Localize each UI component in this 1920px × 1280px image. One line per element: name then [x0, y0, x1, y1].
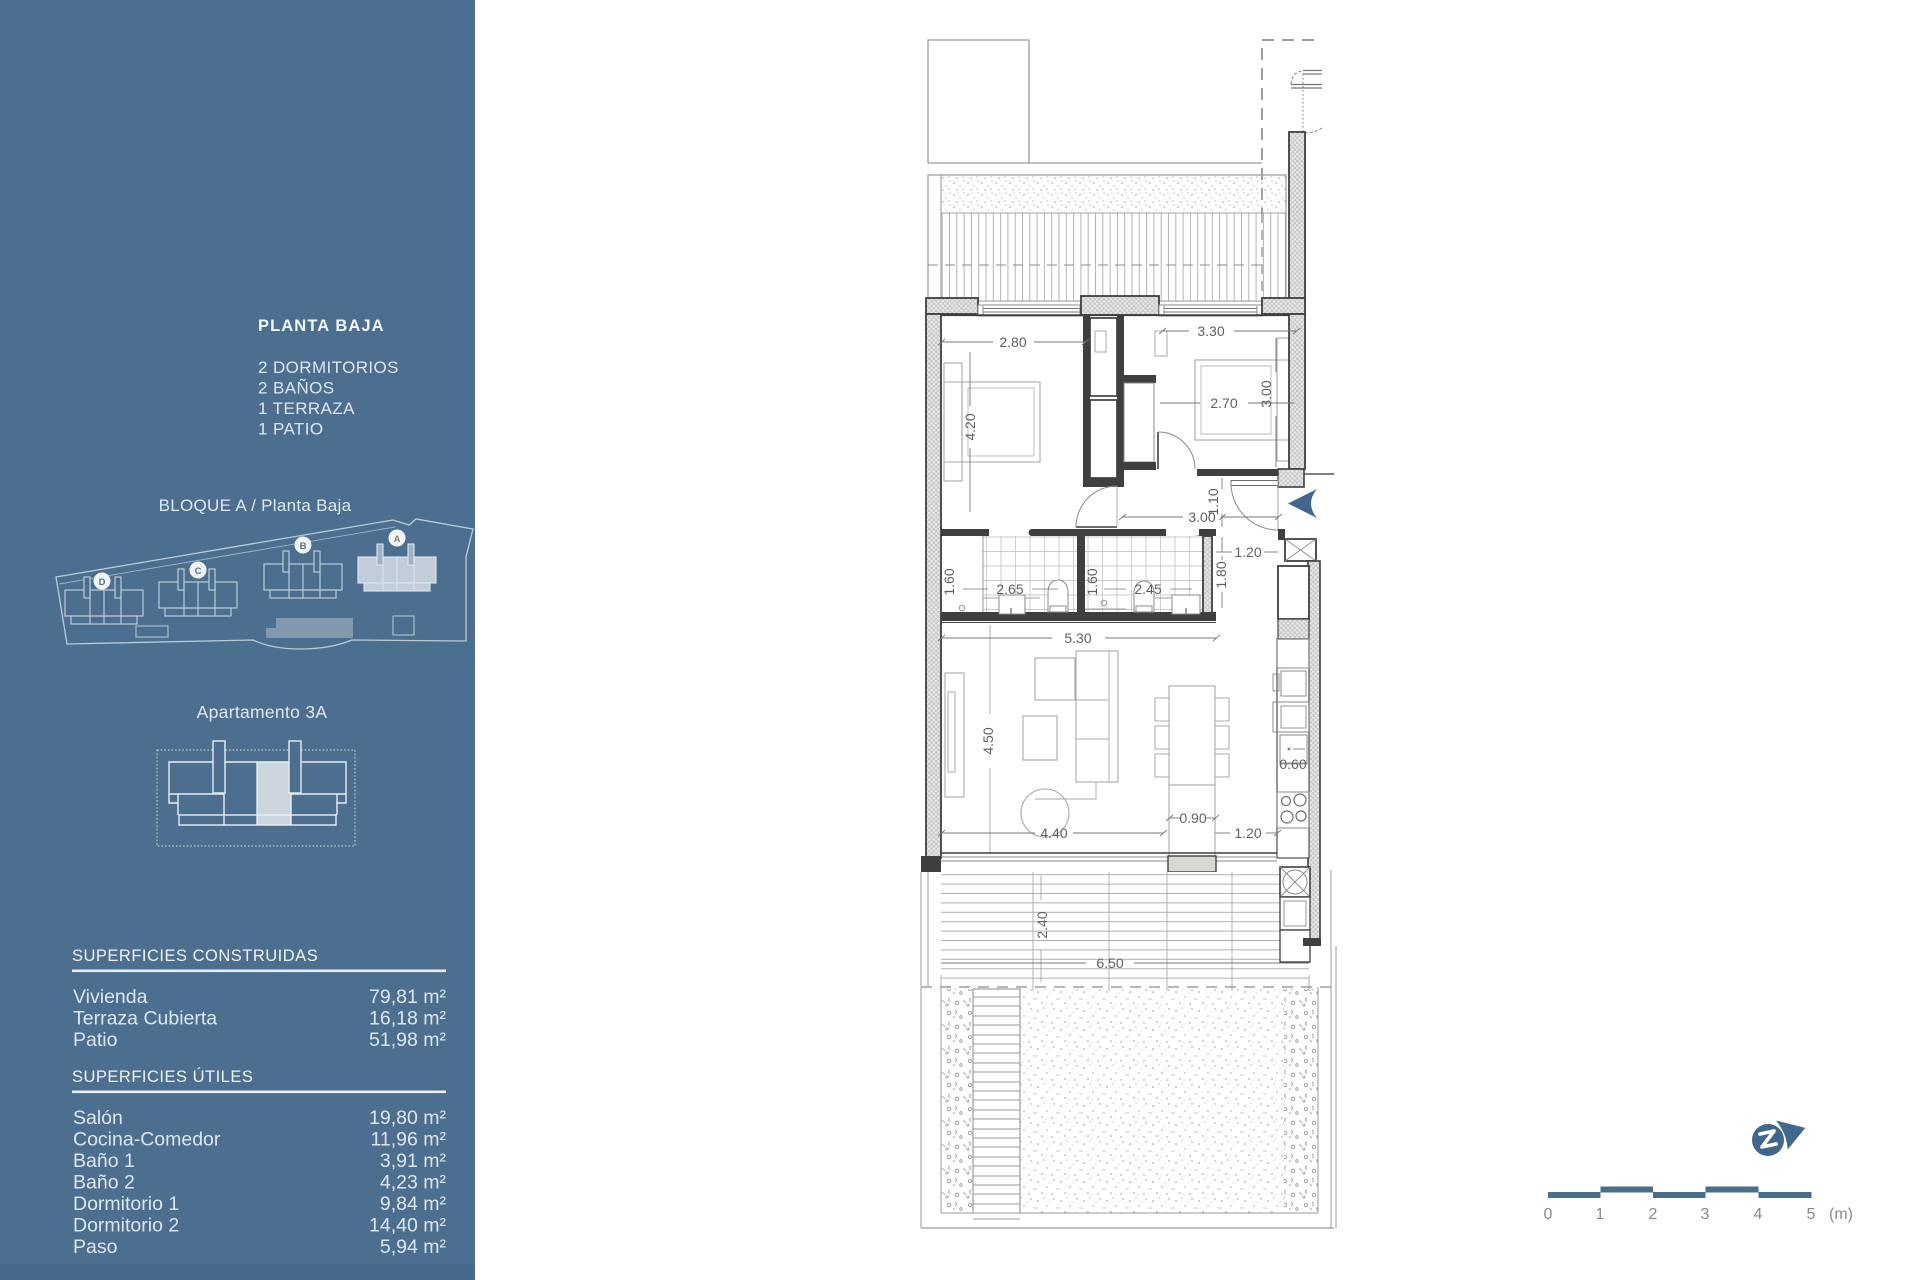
svg-text:9,84 m²: 9,84 m² — [380, 1193, 447, 1215]
svg-text:11,96 m²: 11,96 m² — [370, 1129, 446, 1151]
svg-text:2.45: 2.45 — [1134, 581, 1161, 597]
svg-text:4.20: 4.20 — [962, 413, 978, 440]
svg-text:Vivienda: Vivienda — [73, 986, 148, 1008]
svg-text:BLOQUE A / Planta Baja: BLOQUE A / Planta Baja — [159, 496, 352, 515]
svg-text:4,23 m²: 4,23 m² — [380, 1172, 447, 1194]
svg-text:3.00: 3.00 — [1188, 509, 1215, 525]
svg-text:Dormitorio 1: Dormitorio 1 — [73, 1193, 179, 1215]
svg-text:PLANTA BAJA: PLANTA BAJA — [258, 317, 385, 335]
svg-text:3,91 m²: 3,91 m² — [380, 1150, 447, 1172]
svg-text:1.60: 1.60 — [941, 568, 957, 595]
svg-text:0.90: 0.90 — [1179, 810, 1206, 826]
svg-text:Patio: Patio — [73, 1029, 118, 1051]
svg-text:B: B — [300, 541, 307, 552]
svg-text:2.40: 2.40 — [1034, 911, 1050, 938]
svg-text:Baño 1: Baño 1 — [73, 1150, 135, 1172]
svg-text:(m): (m) — [1829, 1206, 1853, 1223]
svg-text:5: 5 — [1807, 1206, 1816, 1223]
svg-text:1 TERRAZA: 1 TERRAZA — [258, 399, 355, 418]
svg-text:4.50: 4.50 — [980, 727, 996, 754]
svg-text:4: 4 — [1754, 1206, 1763, 1223]
svg-text:A: A — [394, 534, 401, 545]
svg-text:1: 1 — [1596, 1206, 1605, 1223]
svg-text:1.20: 1.20 — [1234, 544, 1261, 560]
svg-text:Terraza Cubierta: Terraza Cubierta — [73, 1008, 217, 1030]
svg-text:3: 3 — [1701, 1206, 1710, 1223]
svg-text:2 BAÑOS: 2 BAÑOS — [258, 379, 335, 398]
svg-text:SUPERFICIES CONSTRUIDAS: SUPERFICIES CONSTRUIDAS — [72, 947, 318, 965]
svg-text:3.30: 3.30 — [1197, 323, 1224, 339]
svg-text:Baño 2: Baño 2 — [73, 1172, 135, 1194]
svg-text:5,94 m²: 5,94 m² — [380, 1236, 447, 1258]
svg-text:1.60: 1.60 — [1084, 568, 1100, 595]
svg-text:Salón: Salón — [73, 1107, 123, 1129]
svg-text:1.20: 1.20 — [1234, 825, 1261, 841]
svg-text:Apartamento 3A: Apartamento 3A — [197, 702, 328, 722]
svg-text:14,40 m²: 14,40 m² — [369, 1215, 446, 1237]
svg-text:5.30: 5.30 — [1064, 630, 1091, 646]
svg-text:C: C — [195, 566, 202, 577]
svg-text:2 DORMITORIOS: 2 DORMITORIOS — [258, 358, 399, 377]
svg-text:Paso: Paso — [73, 1236, 118, 1258]
svg-text:1.80: 1.80 — [1213, 561, 1229, 588]
svg-text:2: 2 — [1649, 1206, 1658, 1223]
svg-text:79,81 m²: 79,81 m² — [369, 986, 446, 1008]
svg-text:1 PATIO: 1 PATIO — [258, 420, 323, 439]
svg-text:2.70: 2.70 — [1210, 395, 1237, 411]
svg-text:0: 0 — [1544, 1206, 1553, 1223]
svg-text:3.00: 3.00 — [1258, 380, 1274, 407]
svg-text:6.50: 6.50 — [1096, 955, 1123, 971]
svg-text:19,80 m²: 19,80 m² — [369, 1107, 446, 1129]
svg-text:51,98 m²: 51,98 m² — [369, 1029, 446, 1051]
svg-text:4.40: 4.40 — [1040, 825, 1067, 841]
svg-text:Dormitorio 2: Dormitorio 2 — [73, 1215, 179, 1237]
svg-text:2.80: 2.80 — [999, 334, 1026, 350]
svg-text:2.65: 2.65 — [996, 581, 1023, 597]
svg-text:SUPERFICIES ÚTILES: SUPERFICIES ÚTILES — [72, 1067, 253, 1086]
svg-text:16,18 m²: 16,18 m² — [369, 1008, 446, 1030]
svg-text:Cocina-Comedor: Cocina-Comedor — [73, 1129, 221, 1151]
svg-text:D: D — [99, 577, 106, 588]
